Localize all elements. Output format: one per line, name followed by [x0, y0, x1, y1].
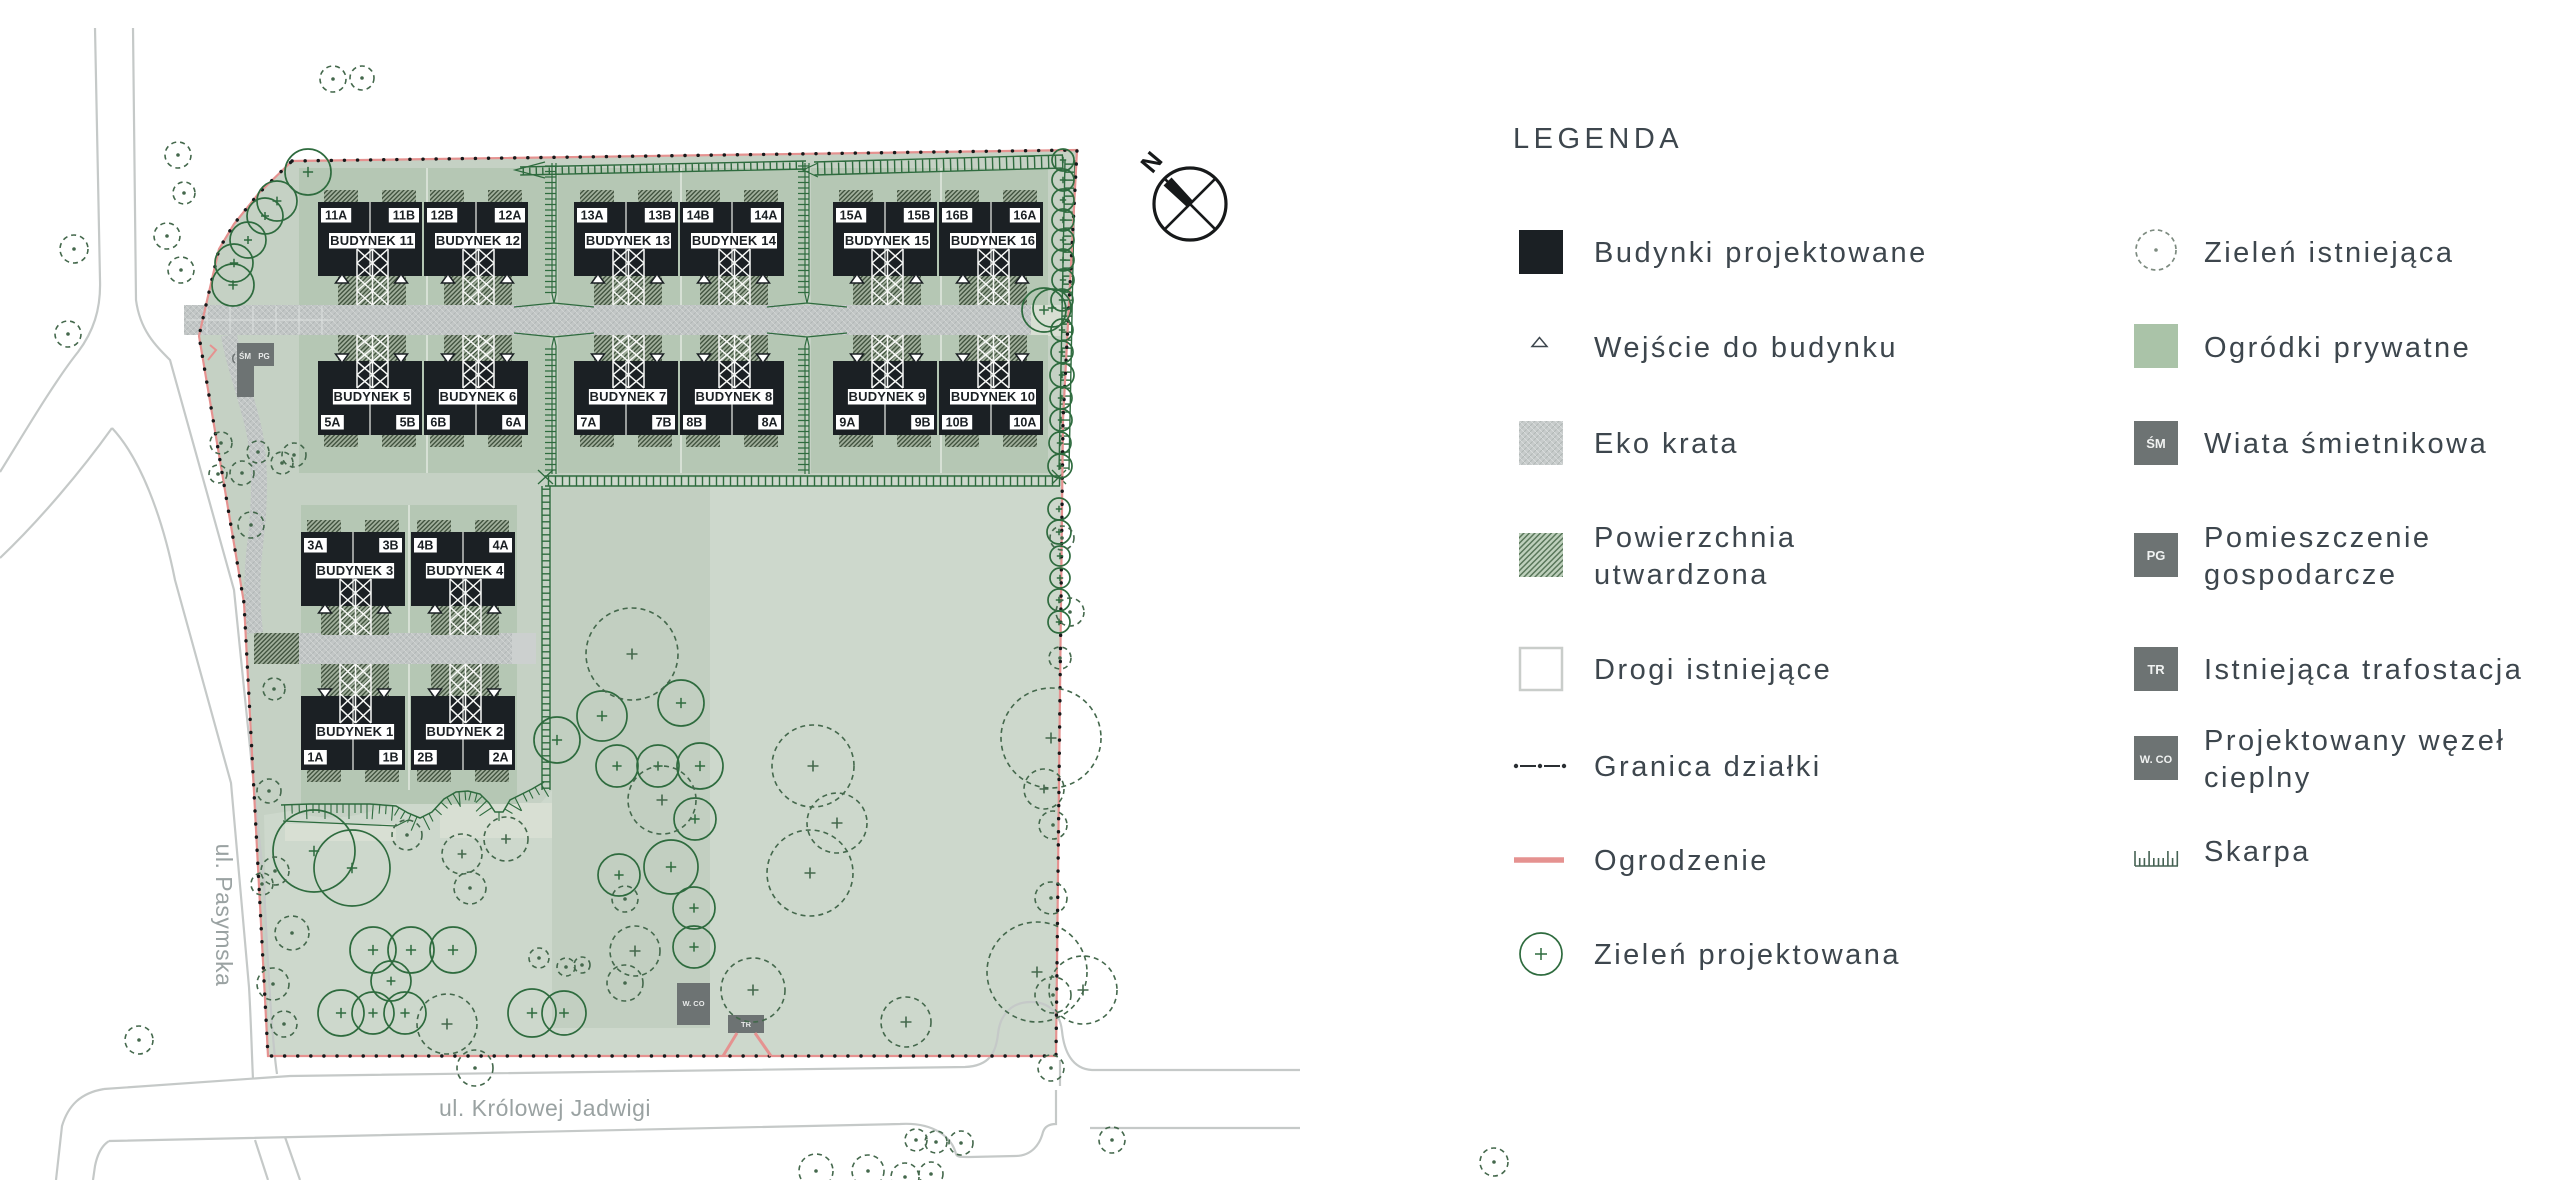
svg-text:Zieleń istniejąca: Zieleń istniejąca — [2204, 237, 2454, 269]
svg-text:BUDYNEK 8: BUDYNEK 8 — [696, 389, 773, 404]
svg-text:4A: 4A — [493, 539, 509, 553]
svg-text:Istniejąca trafostacja: Istniejąca trafostacja — [2204, 654, 2523, 686]
svg-text:BUDYNEK 12: BUDYNEK 12 — [436, 233, 520, 248]
svg-text:Drogi istniejące: Drogi istniejące — [1594, 654, 1832, 686]
svg-text:Zieleń projektowana: Zieleń projektowana — [1594, 939, 1901, 971]
svg-text:Skarpa: Skarpa — [2204, 836, 2311, 868]
svg-text:9B: 9B — [915, 416, 931, 430]
svg-text:BUDYNEK 11: BUDYNEK 11 — [330, 233, 414, 248]
svg-text:BUDYNEK 6: BUDYNEK 6 — [440, 389, 517, 404]
svg-text:BUDYNEK 7: BUDYNEK 7 — [590, 389, 667, 404]
svg-text:9A: 9A — [839, 416, 855, 430]
svg-text:15B: 15B — [907, 209, 930, 223]
svg-text:cieplny: cieplny — [2204, 762, 2312, 794]
svg-text:6A: 6A — [506, 416, 522, 430]
svg-text:BUDYNEK 14: BUDYNEK 14 — [692, 233, 777, 248]
svg-text:BUDYNEK 10: BUDYNEK 10 — [951, 389, 1035, 404]
svg-text:BUDYNEK 3: BUDYNEK 3 — [317, 563, 394, 578]
svg-text:ŚM: ŚM — [2146, 436, 2166, 451]
svg-text:10B: 10B — [946, 416, 969, 430]
svg-text:Ogrodzenie: Ogrodzenie — [1594, 845, 1769, 877]
svg-text:Eko krata: Eko krata — [1594, 428, 1739, 460]
svg-text:6B: 6B — [430, 416, 446, 430]
svg-text:11A: 11A — [325, 209, 347, 223]
svg-text:16B: 16B — [946, 209, 969, 223]
svg-text:16A: 16A — [1013, 209, 1036, 223]
svg-text:Ogródki prywatne: Ogródki prywatne — [2204, 332, 2471, 364]
svg-text:13B: 13B — [648, 209, 671, 223]
svg-text:Projektowany węzeł: Projektowany węzeł — [2204, 725, 2505, 757]
svg-text:5A: 5A — [324, 416, 340, 430]
svg-text:1A: 1A — [307, 751, 323, 765]
svg-text:13A: 13A — [581, 209, 604, 223]
svg-text:ŚM: ŚM — [239, 352, 251, 361]
svg-text:14B: 14B — [687, 209, 710, 223]
svg-text:2B: 2B — [417, 751, 433, 765]
svg-text:1B: 1B — [383, 751, 399, 765]
svg-text:3A: 3A — [307, 539, 323, 553]
svg-text:BUDYNEK 5: BUDYNEK 5 — [334, 389, 411, 404]
svg-text:W. CO: W. CO — [2140, 754, 2173, 766]
svg-text:Powierzchnia: Powierzchnia — [1594, 522, 1796, 554]
svg-text:14A: 14A — [754, 209, 777, 223]
svg-text:TR: TR — [2147, 662, 2165, 677]
svg-text:ul. Królowej Jadwigi: ul. Królowej Jadwigi — [439, 1095, 651, 1121]
svg-text:8B: 8B — [686, 416, 702, 430]
svg-text:12A: 12A — [498, 209, 521, 223]
svg-text:BUDYNEK 15: BUDYNEK 15 — [845, 233, 929, 248]
svg-text:LEGENDA: LEGENDA — [1513, 123, 1683, 155]
svg-text:10A: 10A — [1013, 416, 1036, 430]
svg-text:Wiata śmietnikowa: Wiata śmietnikowa — [2204, 428, 2488, 460]
svg-text:BUDYNEK 1: BUDYNEK 1 — [317, 724, 394, 739]
svg-text:BUDYNEK 9: BUDYNEK 9 — [849, 389, 926, 404]
svg-text:utwardzona: utwardzona — [1594, 559, 1769, 591]
svg-text:BUDYNEK 13: BUDYNEK 13 — [586, 233, 670, 248]
svg-text:BUDYNEK 2: BUDYNEK 2 — [427, 724, 504, 739]
svg-text:ul. Pasymska: ul. Pasymska — [211, 844, 237, 987]
svg-text:BUDYNEK 4: BUDYNEK 4 — [427, 563, 504, 578]
svg-text:7B: 7B — [656, 416, 672, 430]
svg-text:12B: 12B — [431, 209, 454, 223]
svg-text:PG: PG — [258, 352, 270, 361]
svg-text:Granica działki: Granica działki — [1594, 751, 1822, 783]
svg-text:2A: 2A — [493, 751, 509, 765]
svg-text:Budynki projektowane: Budynki projektowane — [1594, 237, 1928, 269]
svg-text:BUDYNEK 16: BUDYNEK 16 — [951, 233, 1035, 248]
svg-text:PG: PG — [2147, 548, 2166, 563]
svg-text:N: N — [1135, 147, 1168, 179]
svg-text:7A: 7A — [580, 416, 596, 430]
svg-text:8A: 8A — [762, 416, 778, 430]
svg-text:Pomieszczenie: Pomieszczenie — [2204, 522, 2432, 554]
svg-text:3B: 3B — [383, 539, 399, 553]
svg-text:5B: 5B — [400, 416, 416, 430]
svg-text:Wejście do budynku: Wejście do budynku — [1594, 332, 1898, 364]
svg-text:gospodarcze: gospodarcze — [2204, 559, 2398, 591]
svg-text:15A: 15A — [840, 209, 863, 223]
svg-text:11B: 11B — [393, 209, 415, 223]
svg-text:4B: 4B — [417, 539, 433, 553]
svg-text:W. CO: W. CO — [682, 999, 704, 1008]
